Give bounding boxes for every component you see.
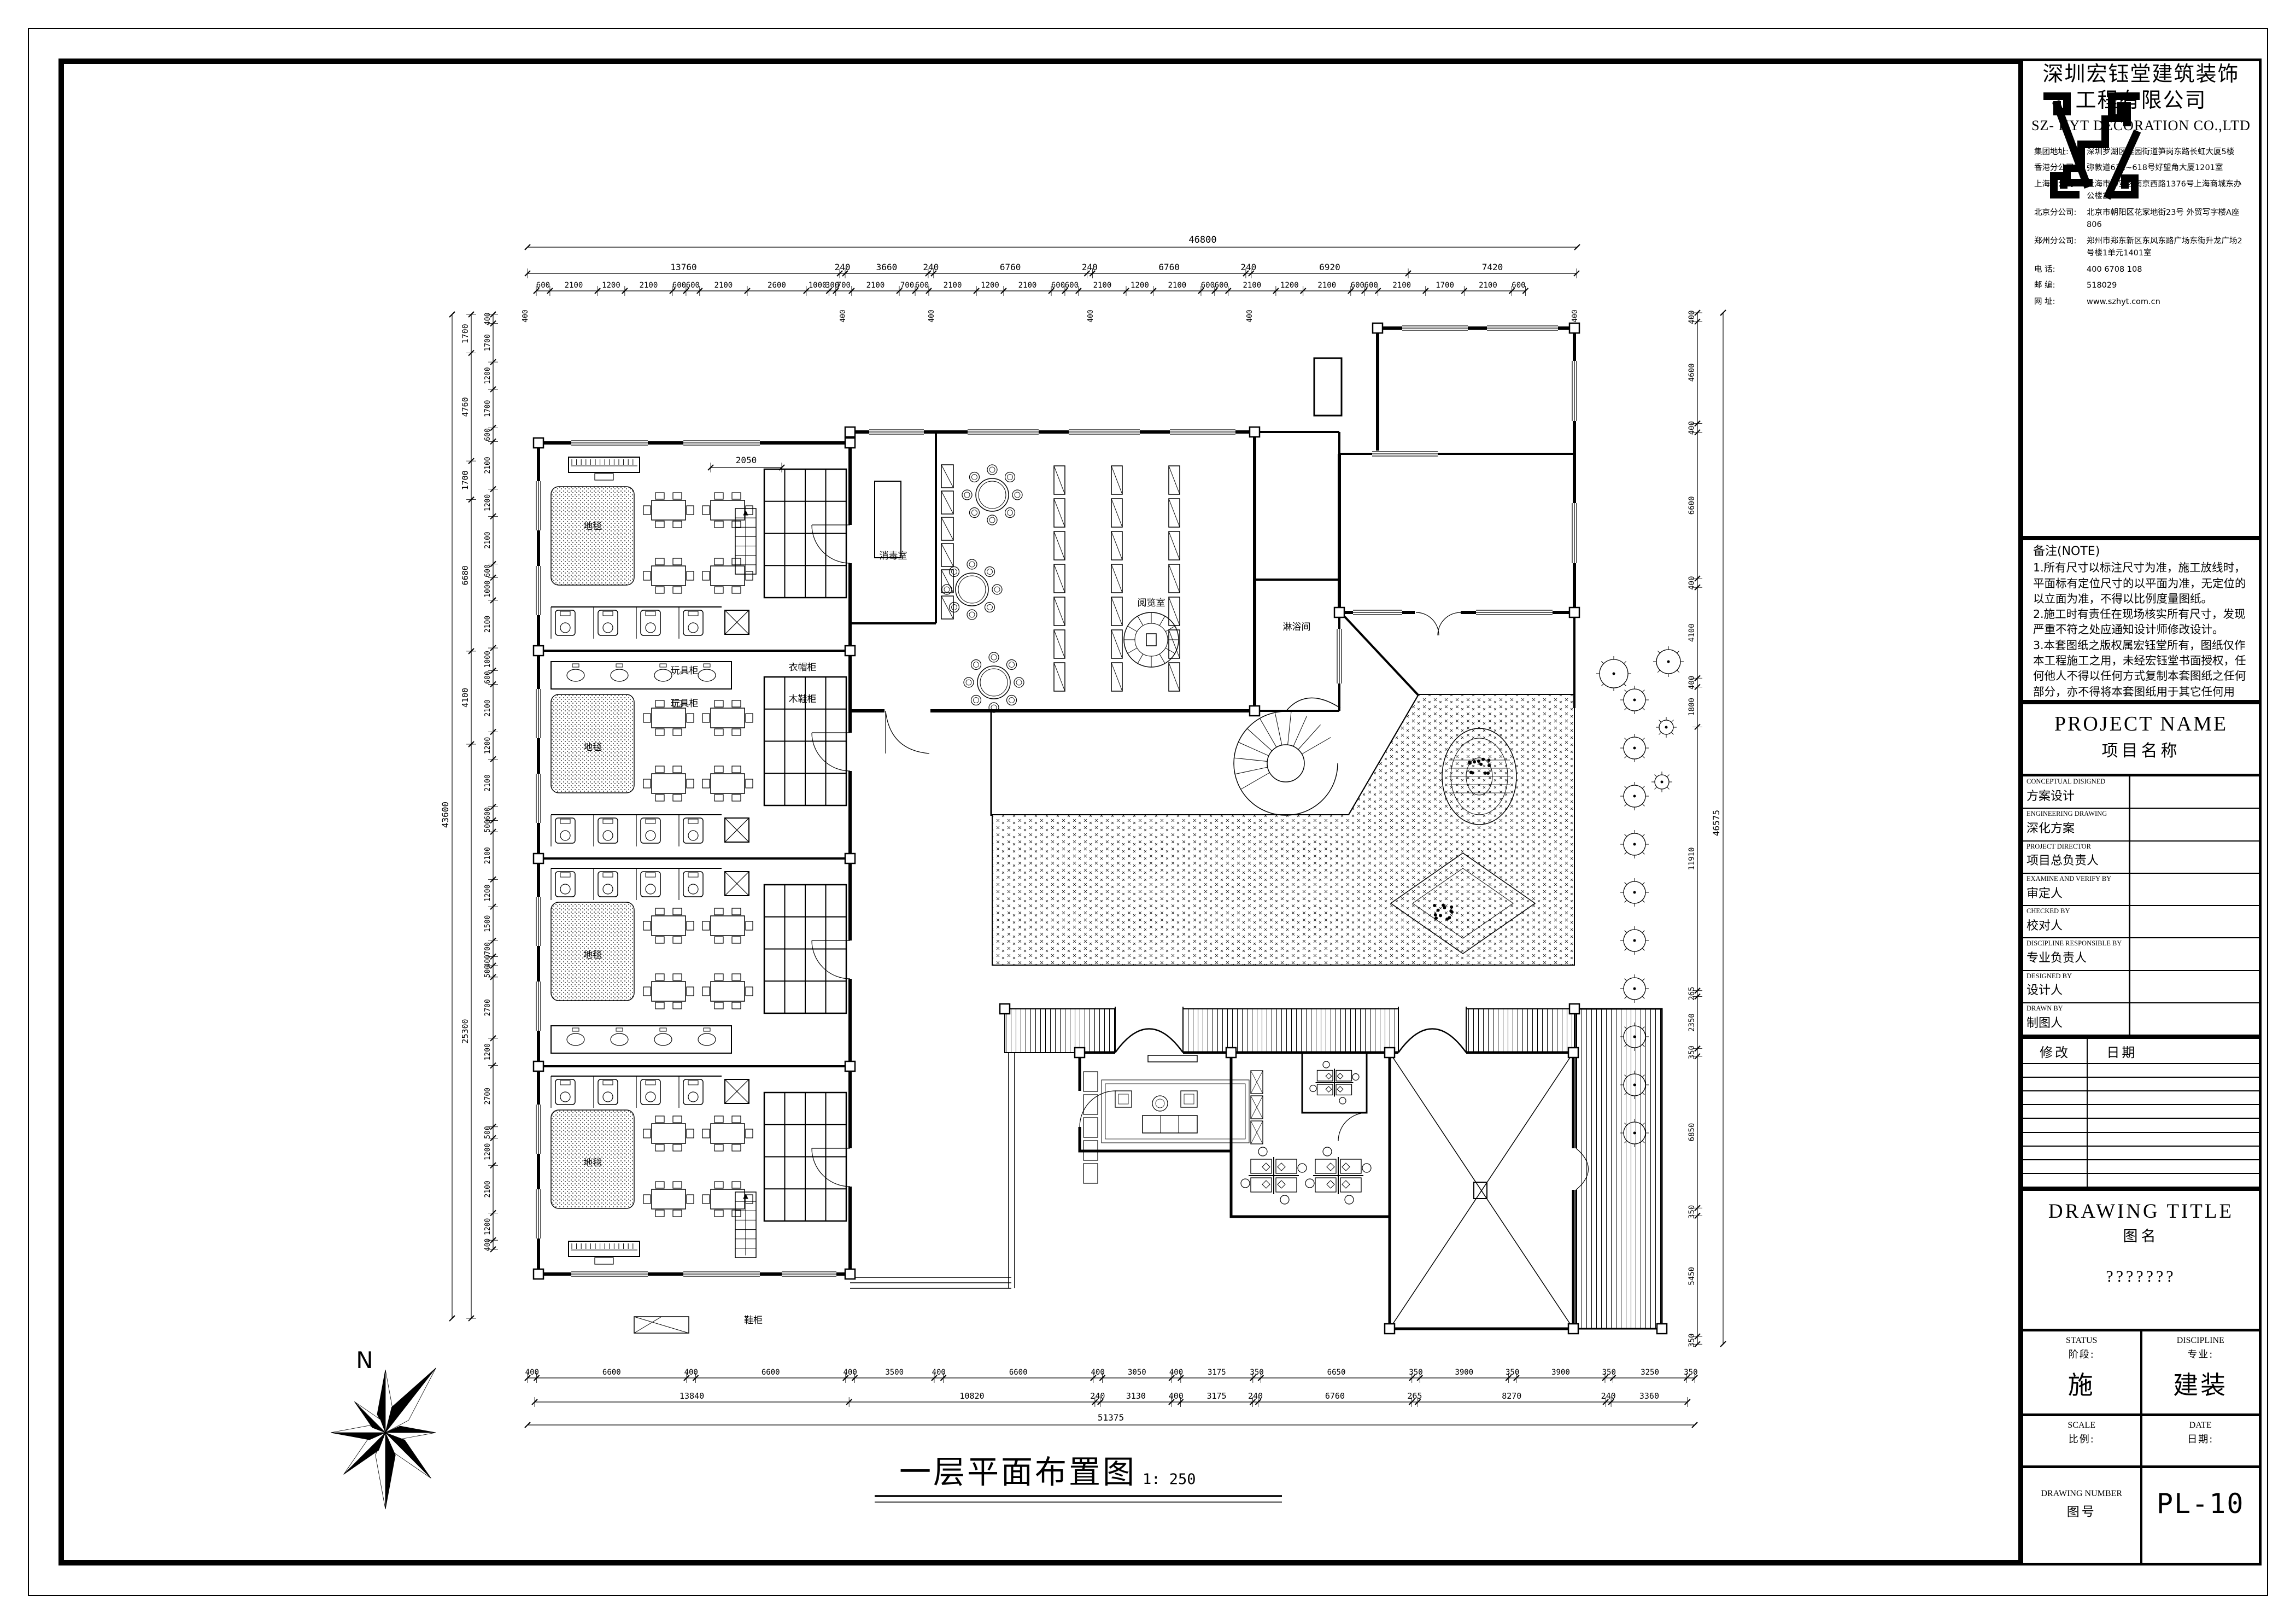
svg-text:2700: 2700 (484, 1088, 492, 1105)
svg-text:4100: 4100 (460, 688, 470, 708)
note-item: 1.所有尺寸以标注尺寸为准，施工放线时，平面标有定位尺寸的以平面为准，无定位的以… (2033, 560, 2249, 606)
revision-empty-row (2023, 1133, 2259, 1147)
discipline-cn: 专业: (2142, 1347, 2259, 1361)
scale-cn: 比例: (2023, 1432, 2140, 1446)
svg-text:3900: 3900 (1455, 1368, 1473, 1377)
role-row: CHECKED BY校对人 (2023, 905, 2259, 937)
address-row: 北京分公司:北京市朝阳区花家地街23号 外贸写字楼A座806 (2034, 207, 2248, 231)
svg-text:46800: 46800 (1188, 235, 1216, 246)
address-row: 郑州分公司:郑州市郑东新区东风东路广场东街升龙广场2号楼1单元1401室 (2034, 235, 2248, 260)
discipline-en: DISCIPLINE (2142, 1336, 2259, 1346)
svg-text:400: 400 (844, 1368, 857, 1377)
revision-table: 修改 日期 (2023, 1035, 2259, 1187)
svg-text:1700: 1700 (1436, 281, 1454, 290)
svg-text:2050: 2050 (736, 455, 757, 465)
svg-text:10820: 10820 (959, 1391, 984, 1401)
project-name-section: PROJECT NAME 项目名称 (2023, 700, 2259, 774)
svg-text:2100: 2100 (1243, 281, 1261, 290)
role-row: DISCIPLINE RESPONSIBLE BY专业负责人 (2023, 937, 2259, 969)
svg-text:600: 600 (1051, 281, 1065, 290)
svg-text:600: 600 (915, 281, 929, 290)
svg-text:1200: 1200 (484, 1043, 492, 1060)
svg-text:2100: 2100 (944, 281, 962, 290)
svg-text:1200: 1200 (981, 281, 999, 290)
role-row: CONCEPTUAL DISIGNED方案设计 (2023, 776, 2259, 808)
revision-header: 修改 日期 (2023, 1039, 2259, 1064)
svg-text:400: 400 (1571, 309, 1579, 322)
drawing-number-row: DRAWING NUMBER 图号 PL-10 (2023, 1465, 2259, 1563)
svg-text:阅览室: 阅览室 (1138, 598, 1165, 609)
discipline-cell: DISCIPLINE 专业: 建装 (2142, 1331, 2259, 1413)
svg-text:6760: 6760 (1158, 262, 1180, 272)
revision-empty-row (2023, 1174, 2259, 1187)
role-row: PROJECT DIRECTOR项目总负责人 (2023, 840, 2259, 873)
note-item: 2.施工时有责任在现场核实所有尺寸，发现严重不符之处应通知设计师修改设计。 (2033, 606, 2249, 638)
svg-text:2100: 2100 (484, 774, 492, 791)
svg-text:4760: 4760 (460, 397, 470, 417)
svg-text:8270: 8270 (1502, 1391, 1521, 1401)
svg-text:木鞋柜: 木鞋柜 (789, 694, 817, 705)
svg-text:2100: 2100 (484, 847, 492, 864)
svg-text:400: 400 (1688, 310, 1696, 324)
svg-text:1000: 1000 (809, 281, 827, 290)
svg-text:1700: 1700 (484, 400, 492, 417)
svg-text:6920: 6920 (1319, 262, 1340, 272)
svg-text:600: 600 (1215, 281, 1228, 290)
svg-text:1200: 1200 (602, 281, 620, 290)
svg-text:2100: 2100 (714, 281, 733, 290)
svg-text:400: 400 (522, 309, 530, 322)
svg-text:500: 500 (484, 1126, 492, 1138)
svg-text:600: 600 (484, 807, 492, 820)
svg-text:1500: 1500 (484, 915, 492, 932)
drawing-caption: 一层平面布置图1: 250 (875, 1453, 1282, 1502)
svg-text:1800: 1800 (1688, 698, 1696, 716)
svg-text:2100: 2100 (1093, 281, 1112, 290)
svg-text:6600: 6600 (762, 1368, 780, 1377)
revision-empty-row (2023, 1078, 2259, 1091)
svg-text:3050: 3050 (1128, 1368, 1146, 1377)
date-cn: 日期: (2142, 1432, 2259, 1446)
revision-empty-row (2023, 1147, 2259, 1160)
status-discipline-row: STATUS 阶段: 施 DISCIPLINE 专业: 建装 (2023, 1329, 2259, 1413)
svg-text:350: 350 (1688, 1205, 1696, 1219)
svg-text:2100: 2100 (484, 616, 492, 633)
svg-text:衣帽柜: 衣帽柜 (789, 662, 817, 673)
svg-text:350: 350 (1688, 1334, 1696, 1347)
svg-text:600: 600 (1065, 281, 1079, 290)
svg-text:1700: 1700 (460, 324, 470, 343)
svg-text:400: 400 (839, 309, 847, 322)
svg-text:6600: 6600 (602, 1368, 621, 1377)
svg-text:1200: 1200 (484, 737, 492, 754)
svg-text:1200: 1200 (484, 494, 492, 511)
status-cn: 阶段: (2023, 1347, 2140, 1361)
svg-text:地毯: 地毯 (583, 521, 602, 532)
drawing-number-label-cell: DRAWING NUMBER 图号 (2023, 1468, 2142, 1563)
revision-col-modify: 修改 (2023, 1039, 2088, 1063)
svg-text:4100: 4100 (1688, 623, 1696, 642)
svg-text:1200: 1200 (484, 367, 492, 384)
project-name-en: PROJECT NAME (2023, 712, 2259, 736)
svg-text:2100: 2100 (484, 531, 492, 548)
discipline-value: 建装 (2142, 1365, 2259, 1401)
svg-text:2100: 2100 (1168, 281, 1187, 290)
svg-text:玩具柜: 玩具柜 (671, 698, 699, 709)
address-row: 电 话:400 6708 108 (2034, 264, 2248, 276)
role-row: DESIGNED BY设计人 (2023, 970, 2259, 1002)
svg-text:2600: 2600 (768, 281, 786, 290)
svg-text:2100: 2100 (1392, 281, 1411, 290)
svg-text:2100: 2100 (1479, 281, 1497, 290)
drawing-number-en: DRAWING NUMBER (2023, 1489, 2140, 1499)
svg-text:600: 600 (484, 428, 492, 441)
svg-text:1200: 1200 (484, 1143, 492, 1160)
revision-empty-row (2023, 1064, 2259, 1078)
drawing-number-value: PL-10 (2142, 1488, 2259, 1520)
drawing-sheet: N 46800137602403660240676024067602406920… (0, 0, 2296, 1624)
svg-text:3130: 3130 (1126, 1391, 1146, 1401)
revision-empty-row (2023, 1160, 2259, 1174)
svg-text:3250: 3250 (1641, 1368, 1659, 1377)
svg-text:350: 350 (1250, 1368, 1263, 1377)
company-logo-icon (2023, 86, 2158, 209)
svg-text:500: 500 (484, 965, 492, 978)
svg-text:1200: 1200 (1280, 281, 1299, 290)
svg-text:1000: 1000 (484, 580, 492, 597)
svg-text:N: N (356, 1347, 373, 1374)
revision-rows (2023, 1064, 2259, 1187)
svg-text:6850: 6850 (1688, 1123, 1696, 1142)
svg-text:地毯: 地毯 (583, 950, 602, 961)
svg-text:400: 400 (684, 1368, 698, 1377)
svg-text:1200: 1200 (484, 885, 492, 902)
notes-section: 备注(NOTE) 1.所有尺寸以标注尺寸为准，施工放线时，平面标有定位尺寸的以平… (2023, 536, 2259, 700)
svg-text:2100: 2100 (1018, 281, 1037, 290)
svg-text:6680: 6680 (460, 565, 470, 585)
svg-text:13840: 13840 (680, 1391, 704, 1401)
svg-text:1700: 1700 (460, 470, 470, 490)
svg-text:地毯: 地毯 (583, 1158, 602, 1169)
svg-text:3500: 3500 (885, 1368, 904, 1377)
drawing-title-en: DRAWING TITLE (2023, 1200, 2259, 1223)
svg-text:1: 250: 1: 250 (1143, 1471, 1196, 1488)
svg-text:2100: 2100 (866, 281, 885, 290)
notes-list: 1.所有尺寸以标注尺寸为准，施工放线时，平面标有定位尺寸的以平面为准，无定位的以… (2033, 560, 2249, 700)
revision-empty-row (2023, 1119, 2259, 1132)
role-row: EXAMINE AND VERIFY BY审定人 (2023, 873, 2259, 905)
floor-plan-canvas: N 46800137602403660240676024067602406920… (0, 0, 2296, 1624)
svg-text:一层平面布置图: 一层平面布置图 (899, 1453, 1137, 1491)
svg-text:13760: 13760 (670, 262, 696, 272)
notes-title: 备注(NOTE) (2033, 544, 2249, 560)
svg-text:25300: 25300 (460, 1019, 470, 1043)
svg-text:地毯: 地毯 (583, 742, 602, 753)
svg-text:消毒室: 消毒室 (880, 551, 907, 562)
sheet-frame (61, 61, 2259, 1563)
svg-text:400: 400 (1087, 309, 1095, 322)
status-en: STATUS (2023, 1336, 2140, 1346)
svg-text:600: 600 (1512, 281, 1525, 290)
svg-text:2100: 2100 (484, 1181, 492, 1197)
svg-text:1000: 1000 (484, 651, 492, 668)
role-row: DRAWN BY制图人 (2023, 1002, 2259, 1035)
drawing-title-cn: 图名 (2023, 1224, 2259, 1246)
svg-text:6760: 6760 (1000, 262, 1021, 272)
svg-text:2700: 2700 (484, 999, 492, 1016)
svg-text:400: 400 (525, 1368, 539, 1377)
svg-text:600: 600 (686, 281, 700, 290)
svg-text:2350: 2350 (1688, 1013, 1696, 1032)
svg-text:1200: 1200 (484, 1218, 492, 1235)
title-block: 深圳宏钰堂建筑装饰 工程有限公司 SZ- HYT DECORATION CO.,… (2018, 61, 2259, 1563)
revision-empty-row (2023, 1105, 2259, 1119)
drawing-title-value: ??????? (2023, 1267, 2259, 1286)
svg-text:2100: 2100 (565, 281, 583, 290)
svg-text:600: 600 (1351, 281, 1364, 290)
svg-text:1200: 1200 (1131, 281, 1149, 290)
company-name-cn-1: 深圳宏钰堂建筑装饰 (2023, 61, 2259, 87)
svg-text:2100: 2100 (640, 281, 658, 290)
svg-text:鞋柜: 鞋柜 (744, 1315, 763, 1326)
svg-text:7420: 7420 (1482, 262, 1503, 272)
svg-text:700: 700 (837, 281, 851, 290)
project-name-cn: 项目名称 (2023, 737, 2259, 761)
svg-text:350: 350 (1688, 1045, 1696, 1059)
svg-text:3175: 3175 (1208, 1368, 1226, 1377)
svg-text:500: 500 (484, 820, 492, 832)
svg-text:淋浴间: 淋浴间 (1283, 622, 1311, 633)
svg-text:1700: 1700 (484, 334, 492, 351)
svg-text:600: 600 (484, 671, 492, 684)
roles-table: CONCEPTUAL DISIGNED方案设计ENGINEERING DRAWI… (2023, 774, 2259, 1035)
company-section: 深圳宏钰堂建筑装饰 工程有限公司 SZ- HYT DECORATION CO.,… (2023, 61, 2259, 536)
svg-text:400: 400 (1246, 309, 1254, 322)
date-cell: DATE 日期: (2142, 1416, 2259, 1465)
svg-text:2100: 2100 (484, 457, 492, 474)
drawing-title-section: DRAWING TITLE 图名 ??????? (2023, 1187, 2259, 1329)
svg-text:700: 700 (900, 281, 914, 290)
svg-text:400: 400 (928, 309, 936, 322)
svg-text:玩具柜: 玩具柜 (671, 665, 699, 676)
svg-text:3660: 3660 (876, 262, 898, 272)
svg-text:400: 400 (932, 1368, 946, 1377)
scale-cell: SCALE 比例: (2023, 1416, 2142, 1465)
svg-text:3360: 3360 (1639, 1391, 1659, 1401)
svg-text:5450: 5450 (1688, 1267, 1696, 1286)
svg-text:400: 400 (1091, 1368, 1105, 1377)
svg-text:4600: 4600 (1688, 363, 1696, 382)
svg-text:400: 400 (1688, 421, 1696, 435)
svg-text:400: 400 (1688, 576, 1696, 589)
svg-text:700: 700 (484, 942, 492, 955)
svg-text:400: 400 (1688, 676, 1696, 690)
svg-text:46575: 46575 (1711, 810, 1721, 836)
date-en: DATE (2142, 1421, 2259, 1430)
address-row: 邮 编:518029 (2034, 279, 2248, 291)
scale-date-row: SCALE 比例: DATE 日期: (2023, 1413, 2259, 1465)
address-row: 网 址:www.szhyt.com.cn (2034, 296, 2248, 308)
drawing-number-value-cell: PL-10 (2142, 1468, 2259, 1563)
svg-text:2100: 2100 (1317, 281, 1336, 290)
plan-geometry: N (331, 323, 1684, 1509)
svg-text:51375: 51375 (1098, 1412, 1124, 1423)
svg-text:350: 350 (1684, 1368, 1697, 1377)
note-item: 3.本套图纸之版权属宏钰堂所有，图纸仅作本工程施工之用，未经宏钰堂书面授权，任何… (2033, 638, 2249, 700)
status-value: 施 (2023, 1365, 2140, 1401)
svg-text:600: 600 (536, 281, 550, 290)
svg-text:600: 600 (1364, 281, 1378, 290)
svg-text:400: 400 (1169, 1391, 1184, 1401)
svg-text:3175: 3175 (1206, 1391, 1226, 1401)
svg-text:6600: 6600 (1688, 496, 1696, 515)
drawing-number-cn: 图号 (2023, 1501, 2140, 1520)
svg-text:350: 350 (1409, 1368, 1422, 1377)
revision-empty-row (2023, 1091, 2259, 1105)
revision-col-date: 日期 (2088, 1039, 2259, 1063)
svg-text:600: 600 (484, 564, 492, 577)
svg-text:43600: 43600 (440, 802, 450, 828)
svg-text:11910: 11910 (1688, 847, 1696, 870)
svg-text:3900: 3900 (1551, 1368, 1570, 1377)
scale-en: SCALE (2023, 1421, 2140, 1430)
svg-text:350: 350 (1506, 1368, 1519, 1377)
svg-text:2100: 2100 (484, 699, 492, 716)
role-row: ENGINEERING DRAWING深化方案 (2023, 808, 2259, 840)
status-cell: STATUS 阶段: 施 (2023, 1331, 2142, 1413)
svg-text:6650: 6650 (1327, 1368, 1346, 1377)
north-arrow: N (331, 1347, 436, 1509)
svg-text:6760: 6760 (1325, 1391, 1345, 1401)
svg-text:6600: 6600 (1009, 1368, 1028, 1377)
svg-text:400: 400 (1169, 1368, 1183, 1377)
svg-text:350: 350 (1602, 1368, 1616, 1377)
svg-text:600: 600 (1201, 281, 1215, 290)
svg-text:600: 600 (672, 281, 686, 290)
